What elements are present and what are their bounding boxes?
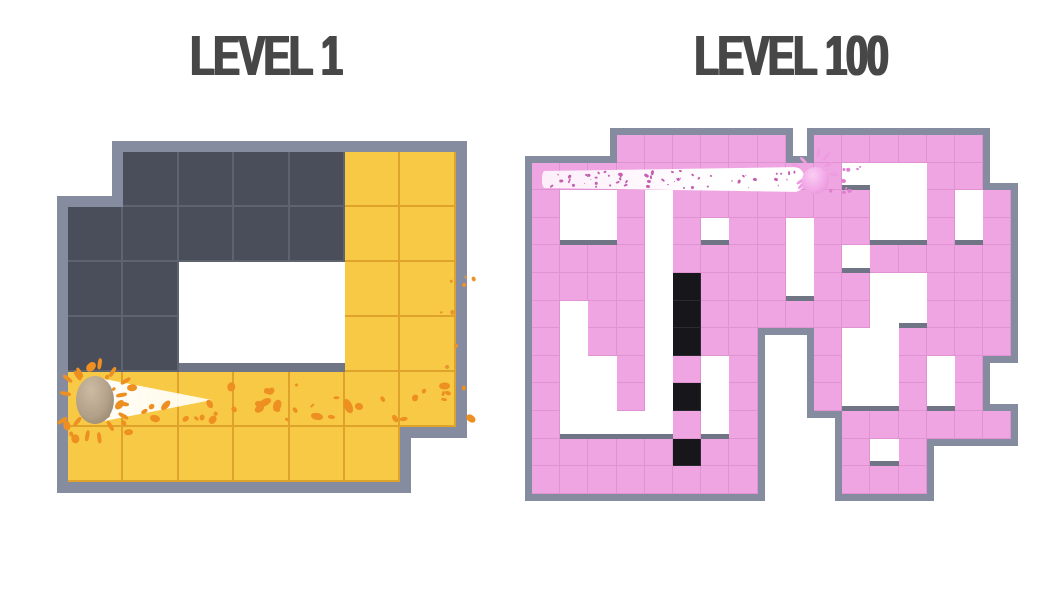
maze-cell-painted-pink-tile	[955, 411, 983, 439]
maze-wall-top	[645, 128, 673, 135]
maze-cell-painted-pink-tile	[814, 383, 842, 411]
maze-cell-painted-pink-tile	[673, 245, 701, 273]
maze-wall-bottom	[588, 494, 616, 501]
maze-cell-painted-pink-tile	[532, 328, 560, 356]
maze-cell-painted-pink-tile	[927, 135, 955, 163]
maze-cell-painted-pink-tile	[729, 466, 757, 494]
maze-cell-painted-pink-tile	[532, 411, 560, 439]
maze-cell-painted-pink-tile	[814, 190, 842, 218]
maze-wall-right	[927, 439, 934, 467]
maze-cell-painted-pink-tile	[927, 245, 955, 273]
maze-cell-painted-pink-tile	[532, 218, 560, 246]
maze-cell-painted-pink-tile	[786, 301, 814, 329]
maze-cell-painted-pink-tile	[673, 466, 701, 494]
maze-cell-painted-pink-tile	[927, 163, 955, 191]
maze-cell-painted-pink-tile	[899, 383, 927, 411]
maze-cell-painted-pink-tile	[673, 135, 701, 163]
maze-cell-painted-pink-tile	[758, 190, 786, 218]
maze-cell-painted-pink-tile	[955, 163, 983, 191]
maze-wall-right	[758, 439, 765, 467]
maze-cell-painted-pink-tile	[701, 190, 729, 218]
maze-wall-bottom	[234, 482, 289, 493]
maze-cell-painted-pink-tile	[729, 245, 757, 273]
maze-cell-unpainted-dark-tile	[123, 152, 178, 207]
maze-cell-painted-pink-tile	[729, 439, 757, 467]
maze-wall-bottom	[179, 482, 234, 493]
maze-cell-painted-pink-tile	[870, 411, 898, 439]
maze-cell-painted-pink-tile	[983, 218, 1011, 246]
maze-cell-painted-pink-tile	[729, 135, 757, 163]
maze-cell-painted-pink-tile	[955, 301, 983, 329]
maze-wall-right	[456, 141, 467, 207]
maze-cell-painted-pink-tile	[899, 411, 927, 439]
maze-cell-painted-pink-tile	[701, 328, 729, 356]
paint-splatter-dot	[788, 171, 790, 175]
maze-cell-painted-pink-tile	[870, 245, 898, 273]
maze-wall-left	[525, 218, 532, 246]
maze-cell-unpainted-dark-tile	[290, 207, 345, 262]
maze-wall-right	[983, 128, 990, 163]
maze-cell-painted-pink-tile	[983, 190, 1011, 218]
maze-cell-unpainted-dark-tile	[123, 317, 178, 372]
maze-cell-unpainted-dark-tile	[68, 207, 123, 262]
maze-cell-painted-pink-tile	[617, 135, 645, 163]
paint-splatter-dot	[464, 275, 468, 279]
maze-wall-bottom	[701, 494, 729, 501]
maze-wall-bottom	[617, 494, 645, 501]
maze-wall-right	[1011, 245, 1018, 273]
maze-wall-left	[835, 439, 842, 467]
maze-cell-painted-pink-tile	[701, 135, 729, 163]
maze-cell-painted-pink-tile	[532, 273, 560, 301]
maze-cell-painted-pink-tile	[673, 218, 701, 246]
maze-cell-painted-pink-tile	[617, 218, 645, 246]
maze-wall-left	[807, 328, 814, 356]
paint-splatter-dot	[69, 431, 73, 436]
maze-wall-bottom	[290, 482, 345, 493]
maze-cell-painted-pink-tile	[814, 301, 842, 329]
maze-cell-painted-pink-tile	[645, 135, 673, 163]
maze-cell-painted-pink-tile	[560, 245, 588, 273]
paint-splatter-dot	[650, 175, 652, 179]
paint-splatter-dot	[775, 172, 777, 174]
maze-wall-left	[525, 245, 532, 273]
maze-wall-left	[807, 356, 814, 384]
maze-cell-painted-yellow-tile	[290, 427, 345, 482]
maze-wall-left	[525, 411, 532, 439]
maze-cell-painted-pink-tile	[899, 356, 927, 384]
maze-wall-top	[234, 141, 289, 152]
maze-cell-painted-pink-tile	[673, 411, 701, 439]
maze-cell-painted-pink-tile	[842, 135, 870, 163]
maze-cell-painted-pink-tile	[927, 301, 955, 329]
maze-cell-unpainted-black-tile	[673, 439, 701, 467]
maze-cell-painted-pink-tile	[842, 273, 870, 301]
maze-cell-unpainted-black-tile	[673, 328, 701, 356]
maze-cell-painted-pink-tile	[560, 273, 588, 301]
maze-cell-painted-pink-tile	[532, 301, 560, 329]
maze-cell-painted-pink-tile	[758, 218, 786, 246]
maze-cell-painted-pink-tile	[617, 273, 645, 301]
maze-wall-top	[870, 128, 898, 135]
maze-wall-left	[525, 190, 532, 218]
maze-cell-painted-pink-tile	[701, 273, 729, 301]
maze-cell-painted-pink-tile	[588, 273, 616, 301]
maze-cell-painted-yellow-tile	[234, 427, 289, 482]
maze-wall-left	[525, 328, 532, 356]
maze-cell-painted-pink-tile	[955, 135, 983, 163]
maze-wall-right	[758, 383, 765, 411]
maze-cell-unpainted-dark-tile	[234, 152, 289, 207]
maze-wall-left	[835, 411, 842, 439]
maze-cell-painted-pink-tile	[729, 411, 757, 439]
maze-cell-painted-pink-tile	[588, 439, 616, 467]
maze-wall-right	[400, 427, 411, 493]
paint-splatter-dot	[595, 182, 598, 185]
paint-splatter-dot	[844, 186, 847, 189]
maze-cell-painted-yellow-tile	[345, 427, 400, 482]
maze-cell-painted-yellow-tile	[400, 317, 455, 372]
maze-wall-right	[758, 328, 765, 356]
maze-cell-painted-pink-tile	[729, 301, 757, 329]
maze-wall-left	[807, 383, 814, 418]
maze-cell-painted-pink-tile	[955, 383, 983, 411]
maze-wall-right	[456, 207, 467, 262]
maze-cell-painted-pink-tile	[532, 383, 560, 411]
maze-cell-painted-pink-tile	[842, 439, 870, 467]
maze-wall-left	[525, 301, 532, 329]
paint-splatter-dot	[124, 429, 133, 436]
maze-cell-unpainted-dark-tile	[234, 207, 289, 262]
maze-wall-left	[57, 317, 68, 372]
maze-cell-painted-pink-tile	[842, 301, 870, 329]
paint-splatter-dot	[619, 175, 621, 177]
maze-cell-painted-pink-tile	[729, 218, 757, 246]
maze-cell-painted-pink-tile	[532, 356, 560, 384]
maze-cell-painted-yellow-tile	[400, 152, 455, 207]
paint-splatter-dot	[470, 276, 476, 282]
maze-cell-painted-pink-tile	[870, 135, 898, 163]
maze-cell-painted-pink-tile	[617, 190, 645, 218]
maze-cell-painted-pink-tile	[927, 273, 955, 301]
maze-cell-painted-pink-tile	[814, 218, 842, 246]
maze-wall-left	[57, 196, 68, 262]
maze-cell-unpainted-black-tile	[673, 301, 701, 329]
maze-cell-painted-pink-tile	[983, 301, 1011, 329]
maze-wall-top	[179, 141, 234, 152]
paint-splatter-dot	[645, 184, 650, 188]
maze-cell-painted-pink-tile	[899, 328, 927, 356]
maze-cell-painted-pink-tile	[701, 301, 729, 329]
maze-cell-painted-pink-tile	[842, 466, 870, 494]
maze-cell-painted-pink-tile	[955, 273, 983, 301]
maze-cell-painted-pink-tile	[701, 245, 729, 273]
maze-wall-left	[525, 466, 532, 501]
maze-cell-painted-pink-tile	[645, 466, 673, 494]
maze-cell-painted-pink-tile	[758, 301, 786, 329]
maze-wall-left	[525, 273, 532, 301]
maze-wall-top	[345, 141, 400, 152]
maze-cell-painted-pink-tile	[673, 356, 701, 384]
maze-cell-painted-pink-tile	[701, 466, 729, 494]
maze-wall-bottom	[955, 439, 983, 446]
paint-splatter-dot	[691, 186, 695, 189]
maze-wall-right	[1011, 273, 1018, 301]
maze-cell-painted-pink-tile	[617, 328, 645, 356]
maze-cell-unpainted-dark-tile	[290, 152, 345, 207]
maze-cell-painted-yellow-tile	[179, 427, 234, 482]
maze-wall-left	[525, 439, 532, 467]
maze-cell-painted-pink-tile	[955, 245, 983, 273]
maze-cell-painted-pink-tile	[588, 328, 616, 356]
hole-depth-edge	[234, 363, 289, 372]
maze-wall-left	[835, 466, 842, 501]
maze-wall-top	[588, 156, 616, 163]
maze-cell-painted-pink-tile	[814, 245, 842, 273]
splash-spike	[829, 172, 838, 176]
maze-cell-painted-pink-tile	[588, 245, 616, 273]
maze-wall-left	[525, 356, 532, 384]
maze-cell-painted-pink-tile	[729, 356, 757, 384]
paint-splatter-dot	[841, 178, 847, 183]
maze-wall-right	[758, 411, 765, 439]
maze-wall-top	[290, 141, 345, 152]
maze-cell-unpainted-dark-tile	[68, 262, 123, 317]
maze-cell-unpainted-dark-tile	[123, 207, 178, 262]
level-100-title: LEVEL 100	[608, 24, 973, 88]
maze-cell-painted-pink-tile	[617, 383, 645, 411]
maze-cell-painted-pink-tile	[617, 356, 645, 384]
maze-cell-painted-pink-tile	[617, 439, 645, 467]
maze-cell-painted-pink-tile	[560, 439, 588, 467]
paint-splatter-dot	[856, 168, 859, 171]
maze-cell-painted-pink-tile	[617, 245, 645, 273]
maze-wall-top	[927, 128, 955, 135]
maze-cell-painted-pink-tile	[701, 439, 729, 467]
maze-cell-painted-pink-tile	[842, 190, 870, 218]
maze-cell-painted-pink-tile	[617, 301, 645, 329]
maze-wall-right	[1011, 328, 1018, 363]
paint-splatter-dot	[793, 171, 795, 174]
maze-cell-painted-pink-tile	[899, 439, 927, 467]
maze-wall-bottom	[123, 482, 178, 493]
maze-wall-bottom	[645, 494, 673, 501]
maze-cell-painted-yellow-tile	[400, 262, 455, 317]
maze-cell-painted-pink-tile	[899, 135, 927, 163]
maze-wall-left	[57, 427, 68, 493]
level-1-title: LEVEL 1	[80, 24, 452, 88]
maze-cell-painted-pink-tile	[786, 190, 814, 218]
maze-cell-painted-yellow-tile	[400, 207, 455, 262]
maze-wall-right	[983, 356, 990, 384]
maze-cell-painted-yellow-tile	[123, 427, 178, 482]
maze-wall-top	[729, 128, 757, 135]
maze-cell-painted-pink-tile	[814, 356, 842, 384]
maze-cell-painted-pink-tile	[955, 328, 983, 356]
maze-cell-painted-pink-tile	[673, 190, 701, 218]
maze-cell-painted-pink-tile	[814, 273, 842, 301]
paint-splatter-dot	[859, 166, 862, 169]
maze-cell-painted-pink-tile	[758, 135, 786, 163]
paint-splatter-dot	[333, 396, 339, 399]
maze-cell-painted-pink-tile	[532, 439, 560, 467]
maze-wall-right	[456, 372, 467, 438]
maze-cell-painted-pink-tile	[899, 466, 927, 494]
player-ball[interactable]	[802, 167, 829, 194]
maze-cell-unpainted-dark-tile	[123, 262, 178, 317]
maze-cell-painted-pink-tile	[729, 383, 757, 411]
maze-cell-painted-pink-tile	[532, 245, 560, 273]
maze-wall-left	[525, 156, 532, 191]
maze-cell-unpainted-black-tile	[673, 273, 701, 301]
maze-cell-painted-yellow-tile	[400, 372, 455, 427]
maze-cell-painted-pink-tile	[842, 411, 870, 439]
maze-cell-painted-pink-tile	[532, 466, 560, 494]
maze-cell-painted-pink-tile	[927, 190, 955, 218]
maze-wall-right	[456, 262, 467, 317]
maze-cell-painted-pink-tile	[758, 273, 786, 301]
maze-cell-painted-yellow-tile	[345, 262, 400, 317]
maze-wall-right	[1011, 404, 1018, 446]
maze-cell-painted-pink-tile	[870, 466, 898, 494]
maze-wall-top	[899, 128, 927, 135]
maze-wall-bottom	[560, 494, 588, 501]
maze-cell-painted-pink-tile	[645, 439, 673, 467]
maze-wall-top	[701, 128, 729, 135]
splash-spike	[118, 401, 129, 406]
maze-cell-painted-pink-tile	[729, 273, 757, 301]
maze-cell-painted-pink-tile	[955, 356, 983, 384]
maze-wall-right	[1011, 218, 1018, 246]
maze-cell-painted-pink-tile	[983, 328, 1011, 356]
maze-wall-top	[560, 156, 588, 163]
maze-cell-painted-pink-tile	[814, 328, 842, 356]
maze-cell-painted-pink-tile	[927, 411, 955, 439]
maze-wall-top	[673, 128, 701, 135]
maze-cell-unpainted-dark-tile	[179, 207, 234, 262]
maze-cell-painted-pink-tile	[560, 466, 588, 494]
maze-cell-unpainted-black-tile	[673, 383, 701, 411]
maze-cell-painted-pink-tile	[983, 411, 1011, 439]
maze-wall-left	[57, 262, 68, 317]
maze-cell-painted-pink-tile	[729, 328, 757, 356]
maze-cell-painted-yellow-tile	[345, 317, 400, 372]
maze-cell-painted-pink-tile	[758, 245, 786, 273]
maze-cell-painted-pink-tile	[588, 466, 616, 494]
maze-wall-right	[1011, 183, 1018, 218]
maze-cell-unpainted-dark-tile	[179, 152, 234, 207]
maze-cell-painted-pink-tile	[983, 245, 1011, 273]
maze-cell-painted-yellow-tile	[345, 207, 400, 262]
maze-cell-painted-pink-tile	[617, 466, 645, 494]
maze-wall-bottom	[870, 494, 898, 501]
maze-cell-painted-pink-tile	[842, 218, 870, 246]
maze-wall-top	[842, 128, 870, 135]
maze-wall-right	[927, 466, 934, 501]
maze-cell-painted-pink-tile	[899, 245, 927, 273]
maze-wall-right	[1011, 301, 1018, 329]
maze-cell-painted-pink-tile	[532, 190, 560, 218]
paint-splatter-dot	[465, 413, 477, 424]
hole-depth-edge	[179, 363, 234, 372]
maze-wall-right	[758, 356, 765, 384]
page-background: { "titles": { "left": "LEVEL 1", "right"…	[0, 0, 1052, 592]
maze-cell-painted-pink-tile	[927, 218, 955, 246]
maze-wall-left	[525, 383, 532, 411]
maze-wall-right	[758, 466, 765, 501]
maze-cell-painted-pink-tile	[588, 301, 616, 329]
player-ball[interactable]	[76, 376, 114, 424]
maze-cell-painted-pink-tile	[983, 273, 1011, 301]
maze-cell-painted-pink-tile	[729, 190, 757, 218]
paint-splatter-dot	[846, 167, 851, 172]
maze-wall-bottom	[673, 494, 701, 501]
maze-cell-painted-pink-tile	[927, 328, 955, 356]
hole-depth-edge	[290, 363, 345, 372]
paint-splatter-dot	[559, 180, 563, 183]
maze-cell-painted-yellow-tile	[345, 152, 400, 207]
